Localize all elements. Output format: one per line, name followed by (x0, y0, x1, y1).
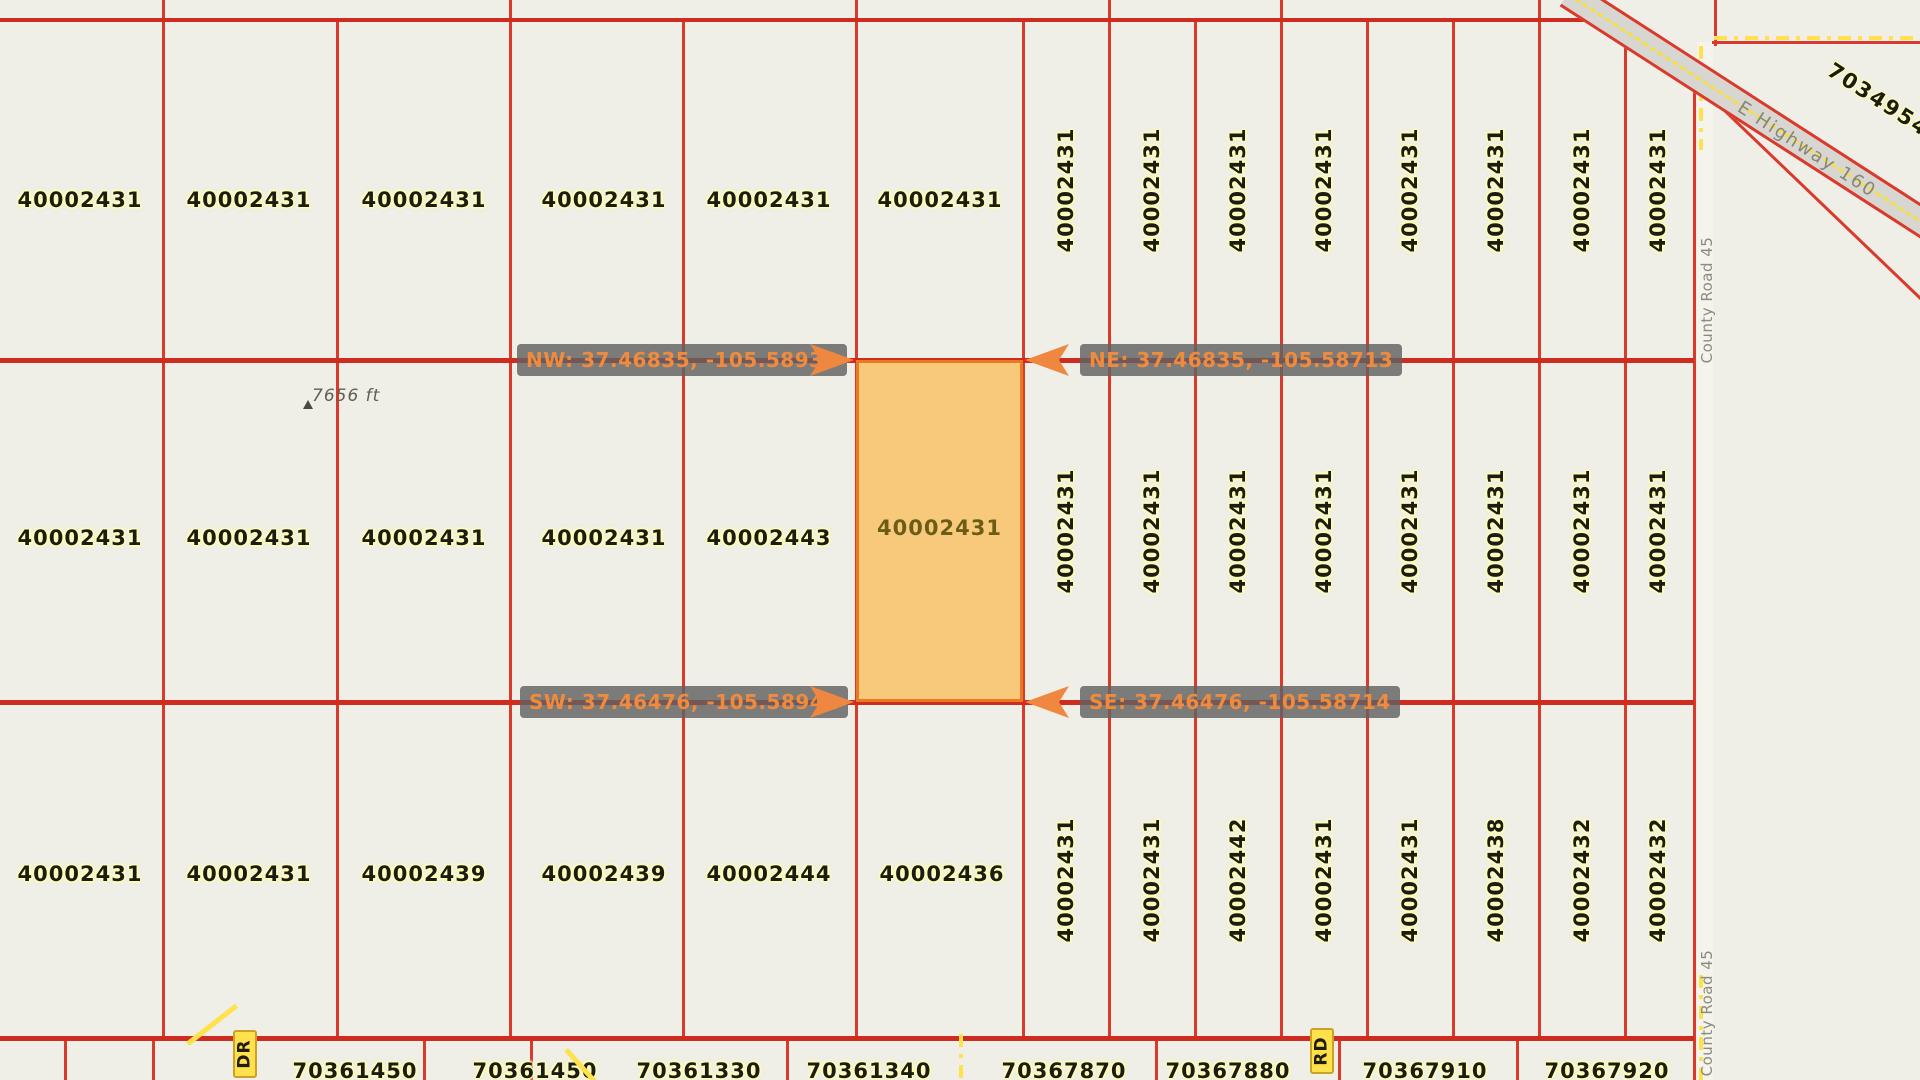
parcel-id-label[interactable]: 40002431 (1054, 128, 1078, 253)
parcel-boundary-line (1452, 20, 1455, 1038)
parcel-id-label[interactable]: 40002436 (880, 862, 1005, 886)
parcel-id-label[interactable]: 40002432 (1570, 818, 1594, 943)
parcel-id-label[interactable]: 40002431 (362, 526, 487, 550)
parcel-map[interactable]: 4000243140002431400024314000243140002431… (0, 0, 1920, 1080)
parcel-id-label[interactable]: 40002431 (1398, 818, 1422, 943)
parcel-id-label[interactable]: 40002438 (1484, 818, 1508, 943)
parcel-id-label[interactable]: 40002431 (18, 862, 143, 886)
parcel-id-label[interactable]: 40002431 (707, 188, 832, 212)
parcel-id-label[interactable]: 40002431 (1312, 818, 1336, 943)
parcel-id-label[interactable]: 40002431 (878, 188, 1003, 212)
highlighted-parcel-id-label: 40002431 (877, 516, 1002, 540)
parcel-boundary-line (1108, 0, 1111, 1038)
parcel-id-label[interactable]: 70367920 (1545, 1059, 1670, 1080)
parcel-id-label[interactable]: 40002431 (187, 526, 312, 550)
parcel-id-label[interactable]: 40002439 (362, 862, 487, 886)
parcel-boundary-line (423, 1038, 426, 1080)
corner-coordinate-ne: NE: 37.46835, -105.58713 (1080, 344, 1402, 376)
parcel-id-label[interactable]: 40002431 (1484, 469, 1508, 594)
parcel-boundary-line (1693, 60, 1696, 1080)
parcel-id-label[interactable]: 40002431 (1646, 469, 1670, 594)
parcel-boundary-line (1538, 0, 1541, 1038)
parcel-boundary-line (64, 1038, 67, 1080)
parcel-id-label[interactable]: 70367880 (1166, 1059, 1291, 1080)
parcel-id-label[interactable]: 40002431 (1312, 469, 1336, 594)
highlighted-parcel[interactable]: 40002431 (856, 360, 1023, 702)
parcel-id-label[interactable]: 40002431 (1054, 818, 1078, 943)
parcel-id-label[interactable]: 40002432 (1646, 818, 1670, 943)
parcel-id-label[interactable]: 40002431 (18, 188, 143, 212)
parcel-id-label[interactable]: 40002431 (1398, 128, 1422, 253)
parcel-boundary-line (1194, 20, 1197, 1038)
parcel-id-label[interactable]: 70367870 (1002, 1059, 1127, 1080)
parcel-boundary-line (509, 0, 512, 1038)
parcel-boundary-line (786, 1038, 789, 1080)
parcel-boundary-line (1280, 0, 1283, 1038)
corner-arrow-left-icon (1025, 342, 1073, 378)
parcel-boundary-line (336, 20, 339, 1038)
parcel-id-label[interactable]: 7034954 (1823, 58, 1920, 141)
parcel-id-label[interactable]: 40002431 (1054, 469, 1078, 594)
county-road-surface (1697, 42, 1713, 1080)
parcel-id-label[interactable]: 40002431 (1570, 469, 1594, 594)
corner-arrow-right-icon (806, 342, 854, 378)
parcel-id-label[interactable]: 40002431 (1140, 469, 1164, 594)
parcel-boundary-line (1366, 20, 1369, 1038)
parcel-id-label[interactable]: 40002431 (1646, 128, 1670, 253)
corner-coordinate-se: SE: 37.46476, -105.58714 (1080, 686, 1400, 718)
parcel-id-label[interactable]: 40002431 (1226, 128, 1250, 253)
parcel-id-label[interactable]: 70361340 (807, 1059, 932, 1080)
parcel-id-label[interactable]: 40002431 (1484, 128, 1508, 253)
highway-name-label: E Highway 160 (1734, 97, 1881, 202)
county-road-label: County Road 45 (1698, 237, 1716, 364)
parcel-boundary-line (1712, 41, 1920, 44)
parcel-boundary-line (0, 18, 1612, 22)
parcel-id-label[interactable]: 40002431 (1312, 128, 1336, 253)
parcel-boundary-line (1155, 1038, 1158, 1080)
parcel-id-label[interactable]: 40002431 (1398, 469, 1422, 594)
parcel-boundary-line (1516, 1038, 1519, 1080)
parcel-id-label[interactable]: 40002431 (18, 526, 143, 550)
parcel-boundary-line (152, 1038, 155, 1080)
road-badge-rd: RD (1310, 1028, 1334, 1074)
parcel-id-label[interactable]: 40002431 (1140, 818, 1164, 943)
yellow-road-dashes (959, 1034, 963, 1080)
parcel-id-label[interactable]: 40002431 (187, 188, 312, 212)
parcel-id-label[interactable]: 40002431 (362, 188, 487, 212)
corner-arrow-left-icon (1025, 684, 1073, 720)
parcel-boundary-line (682, 20, 685, 1038)
corner-coordinate-nw: NW: 37.46835, -105.58938 (517, 344, 847, 376)
corner-arrow-right-icon (806, 684, 854, 720)
parcel-id-label[interactable]: 40002431 (542, 526, 667, 550)
parcel-id-label[interactable]: 70367910 (1363, 1059, 1488, 1080)
road-badge-dr: DR (233, 1030, 257, 1078)
yellow-road-dashes (1714, 36, 1920, 40)
elevation-label: 7656 ft (312, 386, 380, 406)
parcel-id-label[interactable]: 40002431 (1570, 128, 1594, 253)
parcel-id-label[interactable]: 40002431 (542, 188, 667, 212)
parcel-id-label[interactable]: 40002439 (542, 862, 667, 886)
parcel-id-label[interactable]: 40002431 (187, 862, 312, 886)
parcel-id-label[interactable]: 40002431 (1226, 469, 1250, 594)
county-road-label: County Road 45 (1698, 950, 1716, 1077)
parcel-id-label[interactable]: 40002431 (1140, 128, 1164, 253)
corner-coordinate-sw: SW: 37.46476, -105.58941 (520, 686, 848, 718)
parcel-boundary-line (1624, 20, 1627, 1038)
parcel-boundary-line (1338, 1038, 1341, 1080)
parcel-boundary-line (162, 0, 165, 1038)
parcel-id-label[interactable]: 40002442 (1226, 818, 1250, 943)
parcel-id-label[interactable]: 70361450 (293, 1059, 418, 1080)
parcel-id-label[interactable]: 40002443 (707, 526, 832, 550)
parcel-id-label[interactable]: 40002444 (707, 862, 832, 886)
parcel-id-label[interactable]: 70361330 (637, 1059, 762, 1080)
